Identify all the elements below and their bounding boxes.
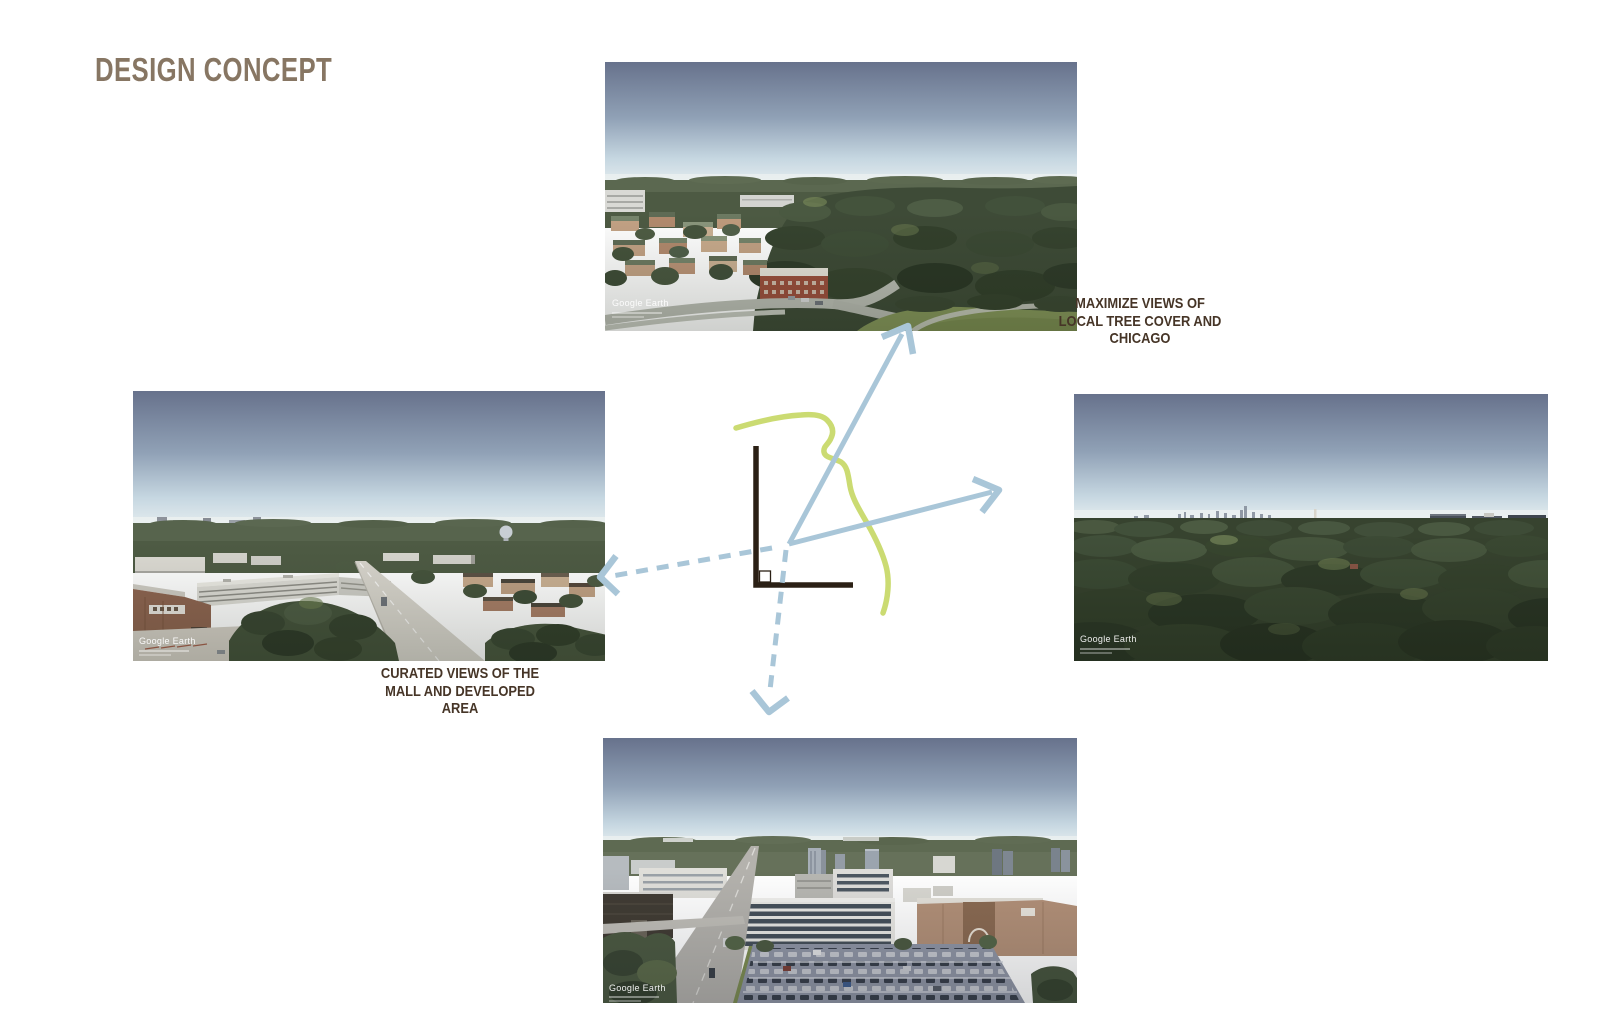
site-plan-outline bbox=[756, 446, 853, 585]
arrow-dashed-to-bottom-photo bbox=[752, 550, 788, 712]
arrow-solid-to-top-photo bbox=[789, 326, 913, 544]
label-curated-views: CURATED VIEWS OF THE MALL AND DEVELOPED … bbox=[365, 665, 554, 718]
page-title: DESIGN CONCEPT bbox=[95, 51, 332, 89]
foreground-shade bbox=[133, 541, 605, 661]
sky bbox=[605, 62, 1077, 186]
label-line: MAXIMIZE VIEWS OF bbox=[1045, 295, 1234, 313]
svg-text:Google Earth: Google Earth bbox=[1080, 634, 1137, 644]
arrow-dashed-to-left-photo bbox=[600, 548, 772, 594]
label-line: CHICAGO bbox=[1045, 330, 1234, 348]
svg-text:Google Earth: Google Earth bbox=[139, 636, 196, 646]
label-line: CURATED VIEWS OF THE bbox=[365, 665, 554, 683]
slide-canvas: DESIGN CONCEPT bbox=[0, 0, 1600, 1035]
arrow-head bbox=[973, 479, 999, 512]
photo-left-aerial: Google Earth bbox=[133, 391, 605, 661]
svg-text:Google Earth: Google Earth bbox=[612, 298, 669, 308]
sky bbox=[1074, 394, 1548, 522]
sky bbox=[133, 391, 605, 528]
foreground-shade bbox=[1074, 534, 1548, 661]
arrow-shaft bbox=[770, 550, 786, 690]
arrow-solid-to-right-photo bbox=[789, 479, 999, 544]
foreground-shade bbox=[605, 212, 1077, 331]
green-path-line bbox=[736, 415, 888, 613]
arrow-shaft bbox=[789, 334, 902, 544]
svg-text:Google Earth: Google Earth bbox=[609, 983, 666, 993]
label-line: MALL AND DEVELOPED bbox=[365, 683, 554, 701]
arrow-shaft bbox=[789, 492, 992, 544]
arrow-head bbox=[752, 691, 788, 712]
label-maximize-views: MAXIMIZE VIEWS OF LOCAL TREE COVER AND C… bbox=[1045, 295, 1234, 348]
l-shape-outline bbox=[756, 446, 853, 585]
photo-right-aerial: Google Earth bbox=[1074, 394, 1548, 661]
right-angle-marker bbox=[760, 571, 771, 582]
photo-bottom-aerial: Google Earth bbox=[603, 738, 1077, 1003]
foreground-shade bbox=[603, 868, 1077, 1003]
photo-top-aerial: Google Earth bbox=[605, 62, 1077, 331]
sky bbox=[603, 738, 1077, 846]
arrow-shaft bbox=[612, 548, 772, 576]
label-line: AREA bbox=[365, 700, 554, 718]
label-line: LOCAL TREE COVER AND bbox=[1045, 313, 1234, 331]
